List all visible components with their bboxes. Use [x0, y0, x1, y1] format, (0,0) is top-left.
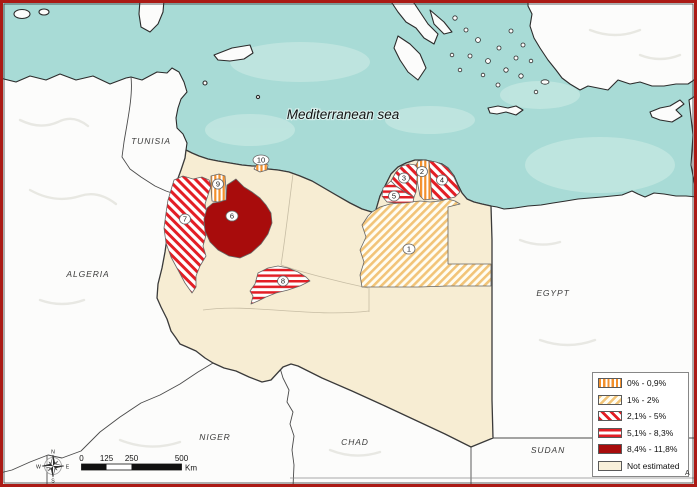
legend-item: 5,1% - 8,3% — [598, 428, 683, 438]
legend-item: Not estimated — [598, 461, 683, 471]
svg-text:5: 5 — [392, 192, 396, 201]
legend-label: 2,1% - 5% — [627, 411, 666, 421]
region-label-3: 3 — [399, 173, 410, 183]
legend-swatch-solid-dark-red — [598, 444, 622, 454]
legend-swatch-red-diagonal-stripes — [598, 411, 622, 421]
region-label-2: 2 — [417, 167, 428, 177]
svg-text:3: 3 — [402, 174, 406, 183]
region-label-7: 7 — [180, 214, 191, 224]
svg-text:Km: Km — [185, 464, 197, 473]
malta-island — [256, 95, 259, 98]
country-label-algeria: ALGERIA — [65, 269, 109, 279]
svg-text:9: 9 — [216, 180, 220, 189]
sea-label: Mediterranean sea — [287, 107, 400, 122]
country-label-tunisia: TUNISIA — [131, 136, 171, 146]
svg-text:E: E — [66, 464, 70, 470]
country-label-sudan: SUDAN — [531, 445, 565, 455]
legend-label: 1% - 2% — [627, 395, 659, 405]
legend-item: 1% - 2% — [598, 395, 683, 405]
svg-text:250: 250 — [125, 454, 139, 463]
svg-text:6: 6 — [230, 212, 234, 221]
svg-text:N: N — [51, 450, 55, 456]
svg-text:0: 0 — [79, 454, 84, 463]
region-label-8: 8 — [278, 276, 289, 286]
svg-text:2: 2 — [420, 167, 424, 176]
corner-note: A — [685, 470, 690, 477]
svg-text:125: 125 — [100, 454, 114, 463]
legend-item: 0% - 0,9% — [598, 378, 683, 388]
legend-item: 2,1% - 5% — [598, 411, 683, 421]
svg-text:W: W — [36, 464, 41, 470]
svg-text:10: 10 — [257, 156, 265, 165]
small-island — [39, 9, 49, 15]
legend-label: Not estimated — [627, 461, 679, 471]
country-label-egypt: EGYPT — [536, 288, 569, 298]
region-label-5: 5 — [389, 191, 400, 201]
region-label-6: 6 — [226, 211, 238, 221]
legend-label: 5,1% - 8,3% — [627, 428, 673, 438]
balearic-island — [14, 10, 30, 19]
region-label-1: 1 — [403, 244, 415, 254]
country-label-niger: NIGER — [199, 432, 230, 442]
legend-item: 8,4% - 11,8% — [598, 444, 683, 454]
legend-swatch-yellow-diagonal-stripes — [598, 395, 622, 405]
svg-text:S: S — [51, 479, 55, 485]
legend-swatch-red-horizontal-stripes — [598, 428, 622, 438]
country-label-chad: CHAD — [341, 437, 369, 447]
svg-text:8: 8 — [281, 277, 285, 286]
svg-text:1: 1 — [407, 245, 411, 254]
region-label-9: 9 — [213, 179, 224, 189]
region-label-10: 10 — [253, 155, 269, 165]
legend-swatch-solid-cream — [598, 461, 622, 471]
legend-label: 8,4% - 11,8% — [627, 444, 677, 454]
map-stage: 1 2 3 4 5 6 7 8 9 10 Mediterranean sea T… — [0, 0, 697, 487]
legend-label: 0% - 0,9% — [627, 378, 666, 388]
region-label-4: 4 — [437, 175, 448, 185]
svg-text:500: 500 — [175, 454, 189, 463]
pantelleria-island — [203, 81, 207, 85]
svg-text:4: 4 — [440, 176, 444, 185]
legend: 0% - 0,9% 1% - 2% 2,1% - 5% 5,1% - 8,3% … — [592, 372, 689, 477]
legend-swatch-orange-vertical-stripes — [598, 378, 622, 388]
svg-text:7: 7 — [183, 215, 187, 224]
